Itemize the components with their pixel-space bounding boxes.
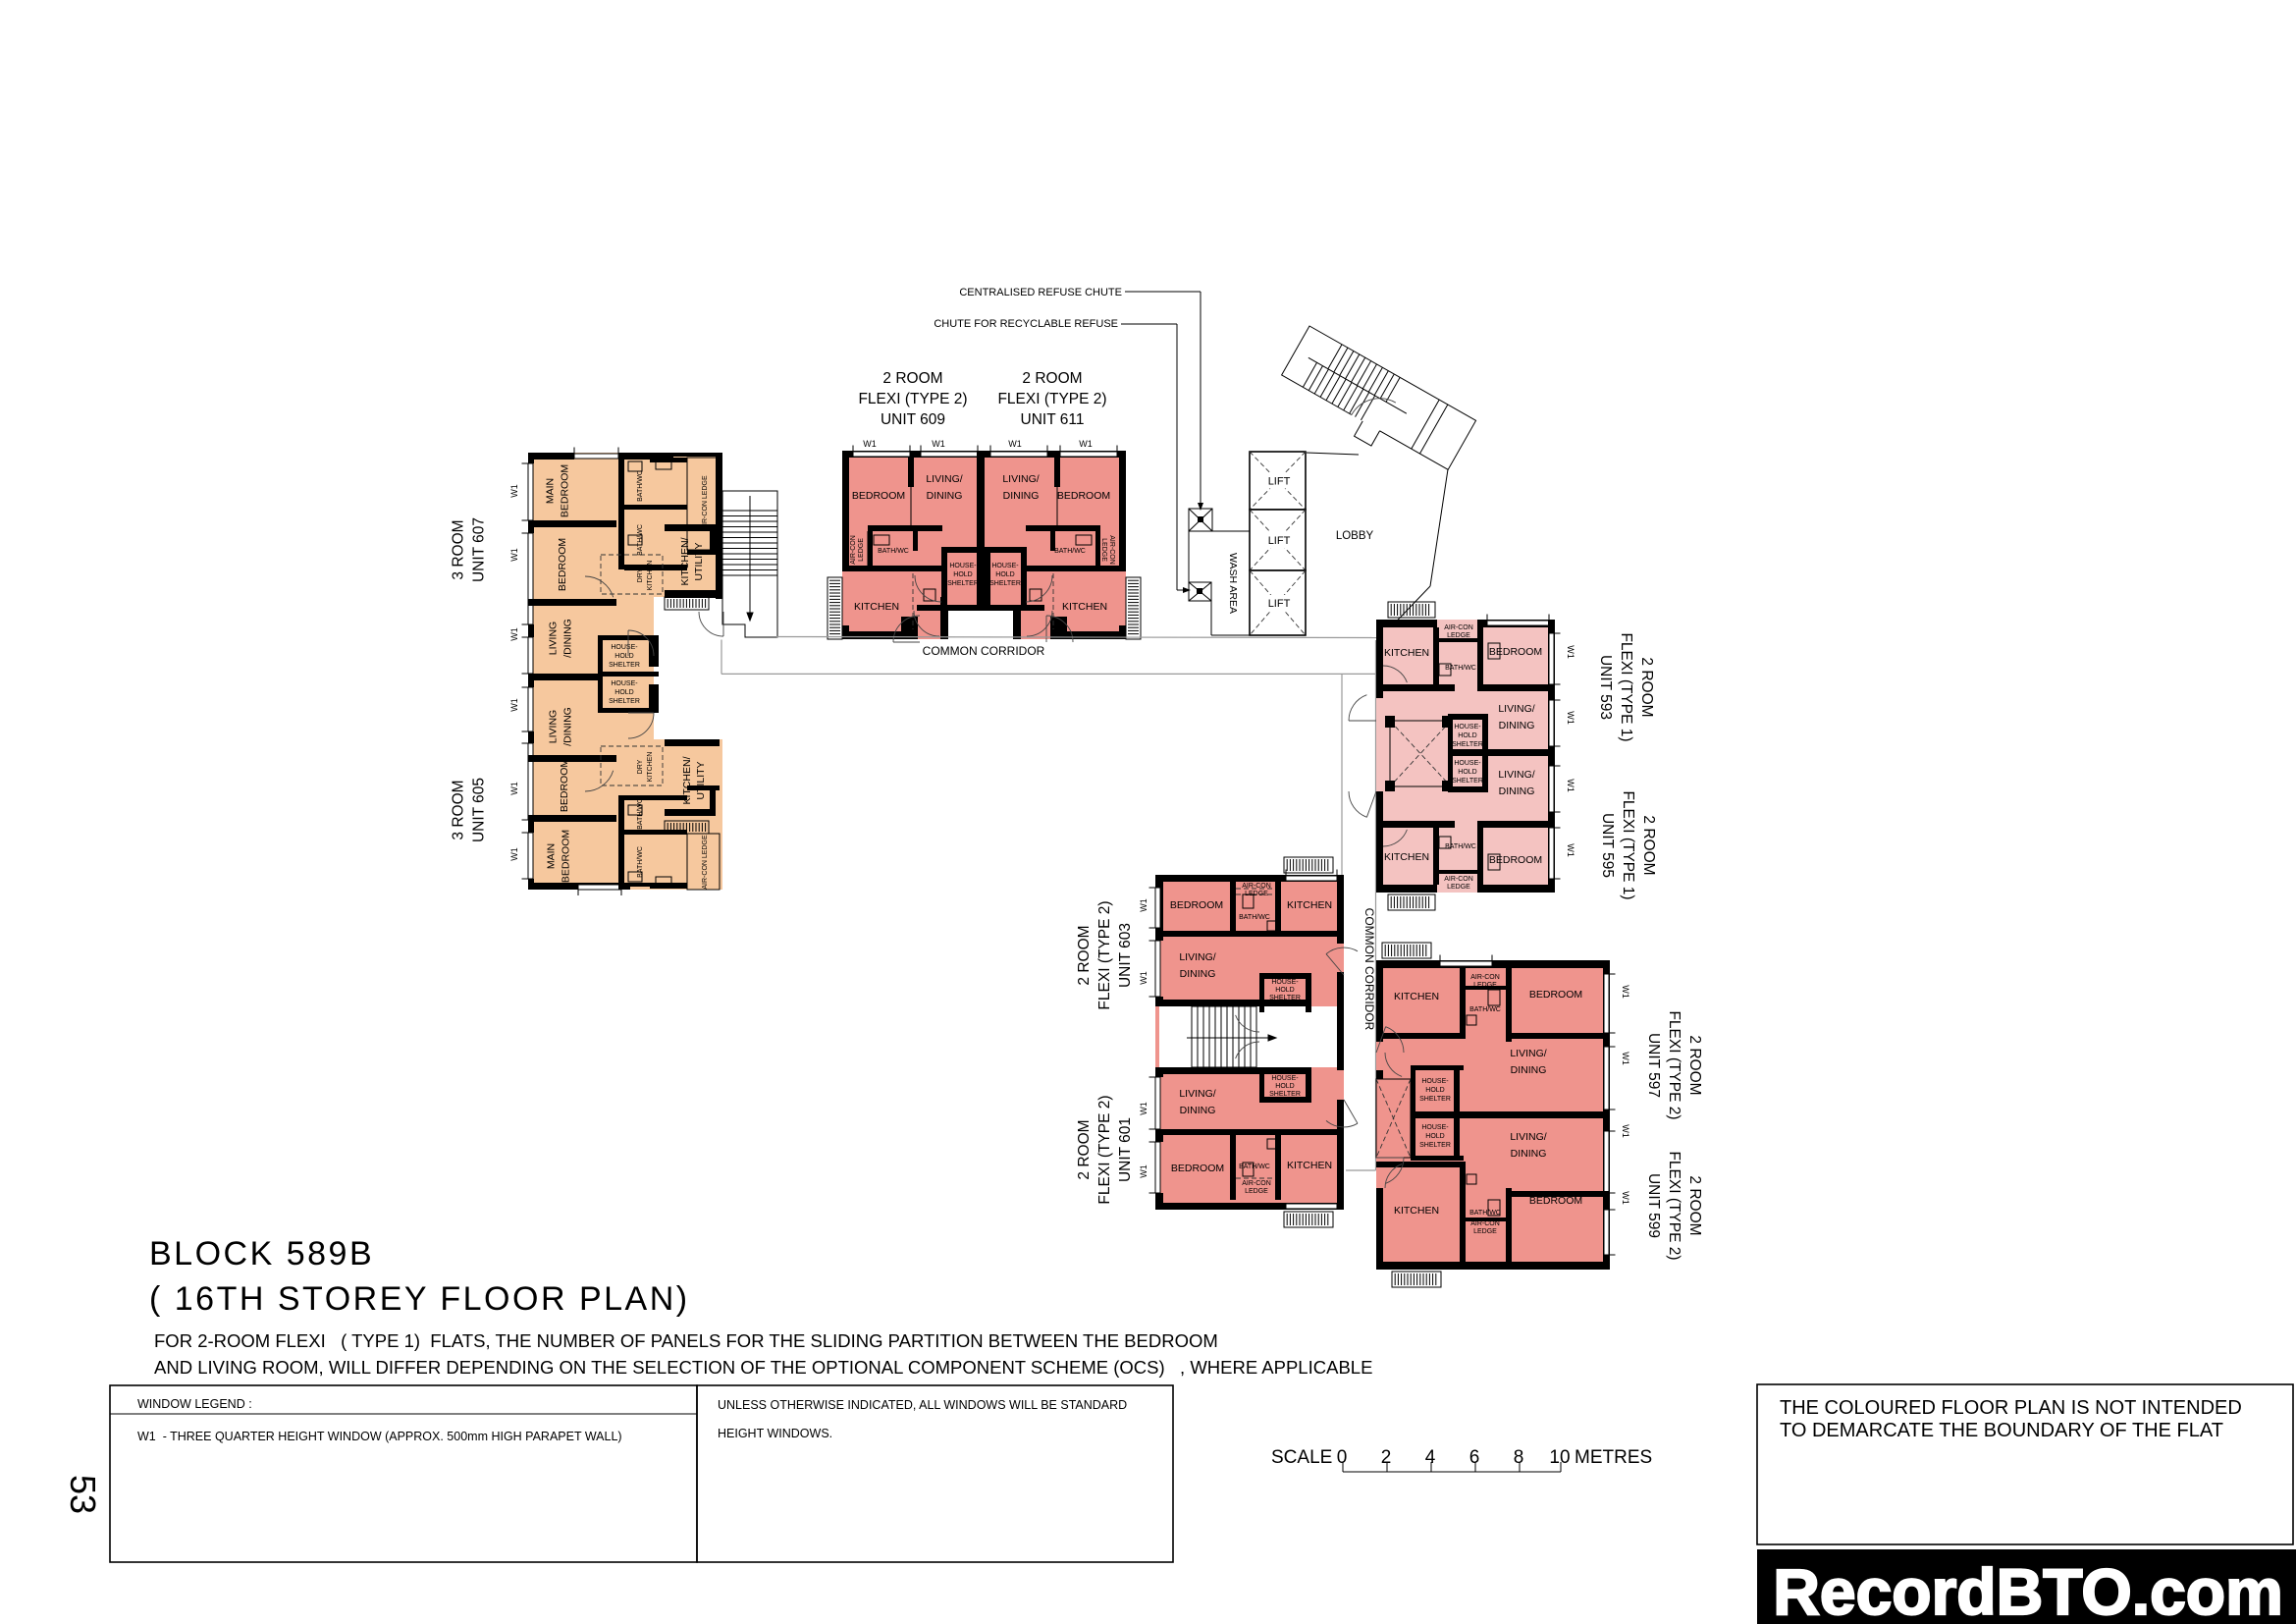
svg-text:FOR 2-ROOM FLEXI ( TYPE 1): FOR 2-ROOM FLEXI ( TYPE 1) FLATS, THE NU… bbox=[154, 1330, 1218, 1351]
svg-text:AIR-CONLEDGE: AIR-CONLEDGE bbox=[850, 535, 865, 565]
svg-text:BATH/WC: BATH/WC bbox=[1445, 665, 1476, 672]
svg-text:6: 6 bbox=[1469, 1447, 1480, 1468]
svg-text:W1: W1 bbox=[1566, 843, 1575, 857]
svg-text:W1: W1 bbox=[1139, 898, 1148, 912]
svg-text:W1: W1 bbox=[1566, 645, 1575, 659]
svg-text:W1: W1 bbox=[1566, 711, 1575, 725]
svg-text:METRES: METRES bbox=[1575, 1447, 1652, 1468]
svg-text:BEDROOM: BEDROOM bbox=[1057, 490, 1110, 502]
svg-text:W1: W1 bbox=[863, 439, 877, 449]
svg-text:AIR-CONLEDGE: AIR-CONLEDGE bbox=[1444, 876, 1473, 891]
svg-text:W1: W1 bbox=[509, 548, 519, 562]
svg-text:10: 10 bbox=[1549, 1447, 1570, 1468]
svg-text:BEDROOM: BEDROOM bbox=[1489, 646, 1542, 658]
svg-text:BEDROOM: BEDROOM bbox=[557, 538, 568, 591]
svg-text:BATH/WC: BATH/WC bbox=[1469, 1006, 1501, 1013]
svg-text:W1: W1 bbox=[509, 847, 519, 861]
svg-text:SCALE: SCALE bbox=[1271, 1447, 1332, 1468]
svg-text:CHUTE FOR RECYCLABLE REFUSE: CHUTE FOR RECYCLABLE REFUSE bbox=[934, 318, 1118, 330]
svg-text:LIFT: LIFT bbox=[1268, 598, 1291, 610]
svg-text:W1: W1 bbox=[932, 439, 945, 449]
svg-text:BEDROOM: BEDROOM bbox=[1529, 1195, 1582, 1207]
svg-text:( 16TH STOREY FLOOR PLAN): ( 16TH STOREY FLOOR PLAN) bbox=[149, 1280, 690, 1318]
svg-text:53: 53 bbox=[63, 1475, 103, 1514]
svg-text:BEDROOM: BEDROOM bbox=[1171, 1163, 1224, 1174]
svg-text:BEDROOM: BEDROOM bbox=[559, 759, 570, 812]
svg-text:AIR-CONLEDGE: AIR-CONLEDGE bbox=[1100, 535, 1115, 565]
svg-text:BATH/WC: BATH/WC bbox=[1239, 1164, 1270, 1170]
svg-text:BLOCK 589B: BLOCK 589B bbox=[149, 1235, 374, 1272]
svg-text:W1 - THREE QUARTER HEIGHT WIN: W1 - THREE QUARTER HEIGHT WINDOW (APPROX… bbox=[137, 1430, 622, 1443]
svg-text:W1: W1 bbox=[1621, 985, 1630, 999]
svg-text:8: 8 bbox=[1514, 1447, 1524, 1468]
svg-text:AIR-CONLEDGE: AIR-CONLEDGE bbox=[1242, 883, 1271, 897]
svg-text:BATH/WC: BATH/WC bbox=[878, 548, 909, 555]
svg-text:4: 4 bbox=[1425, 1447, 1436, 1468]
svg-text:KITCHEN: KITCHEN bbox=[1384, 851, 1429, 863]
svg-text:W1: W1 bbox=[509, 627, 519, 641]
svg-text:W1: W1 bbox=[509, 782, 519, 795]
svg-text:AIR-CONLEDGE: AIR-CONLEDGE bbox=[1242, 1180, 1271, 1195]
svg-text:AND LIVING ROOM, WILL DIFFER D: AND LIVING ROOM, WILL DIFFER DEPENDING O… bbox=[154, 1357, 1372, 1378]
svg-text:UNLESS OTHERWISE INDICATED, AL: UNLESS OTHERWISE INDICATED, ALL WINDOWS … bbox=[718, 1398, 1127, 1412]
svg-text:BATH/WC: BATH/WC bbox=[637, 798, 644, 830]
svg-text:THE COLOURED FLOOR PLAN IS NOT: THE COLOURED FLOOR PLAN IS NOT INTENDED bbox=[1780, 1397, 2242, 1419]
svg-text:BEDROOM: BEDROOM bbox=[1489, 854, 1542, 866]
svg-text:W1: W1 bbox=[1139, 971, 1148, 985]
svg-text:BATH/WC: BATH/WC bbox=[637, 846, 644, 878]
svg-text:KITCHEN: KITCHEN bbox=[1384, 647, 1429, 659]
svg-text:AIR-CONLEDGE: AIR-CONLEDGE bbox=[1470, 1220, 1500, 1235]
svg-text:CENTRALISED REFUSE CHUTE: CENTRALISED REFUSE CHUTE bbox=[959, 287, 1122, 298]
svg-text:LIFT: LIFT bbox=[1268, 535, 1291, 547]
svg-text:BEDROOM: BEDROOM bbox=[1529, 989, 1582, 1001]
svg-text:BATH/WC: BATH/WC bbox=[1239, 914, 1270, 921]
svg-text:BATH/WC: BATH/WC bbox=[637, 524, 644, 556]
svg-text:W1: W1 bbox=[1008, 439, 1022, 449]
svg-text:AIR-CON LEDGE: AIR-CON LEDGE bbox=[702, 475, 709, 530]
svg-text:RecordBTO.com: RecordBTO.com bbox=[1773, 1555, 2283, 1624]
svg-text:W1: W1 bbox=[1079, 439, 1093, 449]
svg-text:0: 0 bbox=[1337, 1447, 1348, 1468]
svg-text:W1: W1 bbox=[1621, 1124, 1630, 1138]
svg-text:KITCHEN: KITCHEN bbox=[1287, 1160, 1332, 1171]
svg-text:BEDROOM: BEDROOM bbox=[852, 490, 905, 502]
svg-text:BATH/WC: BATH/WC bbox=[637, 470, 644, 502]
svg-text:COMMON CORRIDOR: COMMON CORRIDOR bbox=[923, 644, 1045, 658]
svg-text:W1: W1 bbox=[509, 484, 519, 498]
svg-text:COMMON CORRIDOR: COMMON CORRIDOR bbox=[1362, 908, 1376, 1031]
svg-text:2: 2 bbox=[1381, 1447, 1392, 1468]
svg-text:BATH/WC: BATH/WC bbox=[1445, 843, 1476, 850]
svg-text:LOBBY: LOBBY bbox=[1336, 530, 1374, 542]
svg-text:WASH AREA: WASH AREA bbox=[1227, 553, 1239, 614]
svg-text:BEDROOM: BEDROOM bbox=[1170, 899, 1223, 911]
svg-text:AIR-CONLEDGE: AIR-CONLEDGE bbox=[1444, 624, 1473, 639]
svg-text:W1: W1 bbox=[1139, 1164, 1148, 1178]
svg-text:AIR-CON LEDGE: AIR-CON LEDGE bbox=[702, 835, 709, 890]
svg-text:W1: W1 bbox=[1621, 1052, 1630, 1065]
svg-text:KITCHEN: KITCHEN bbox=[1062, 601, 1107, 613]
svg-text:BATH/WC: BATH/WC bbox=[1054, 548, 1086, 555]
svg-text:W1: W1 bbox=[509, 698, 519, 712]
svg-text:KITCHEN: KITCHEN bbox=[854, 601, 899, 613]
svg-text:AIR-CONLEDGE: AIR-CONLEDGE bbox=[1470, 974, 1500, 989]
svg-text:KITCHEN: KITCHEN bbox=[1287, 899, 1332, 911]
svg-text:W1: W1 bbox=[1621, 1191, 1630, 1205]
svg-text:WINDOW LEGEND :: WINDOW LEGEND : bbox=[137, 1397, 252, 1411]
svg-text:W1: W1 bbox=[1139, 1102, 1148, 1115]
svg-text:W1: W1 bbox=[1566, 779, 1575, 792]
svg-text:KITCHEN: KITCHEN bbox=[1394, 1205, 1439, 1217]
svg-text:KITCHEN: KITCHEN bbox=[1394, 991, 1439, 1002]
svg-text:TO DEMARCATE THE BOUNDARY OF T: TO DEMARCATE THE BOUNDARY OF THE FLAT bbox=[1780, 1420, 2223, 1441]
svg-text:LIFT: LIFT bbox=[1268, 476, 1291, 488]
svg-text:HEIGHT WINDOWS.: HEIGHT WINDOWS. bbox=[718, 1427, 832, 1440]
